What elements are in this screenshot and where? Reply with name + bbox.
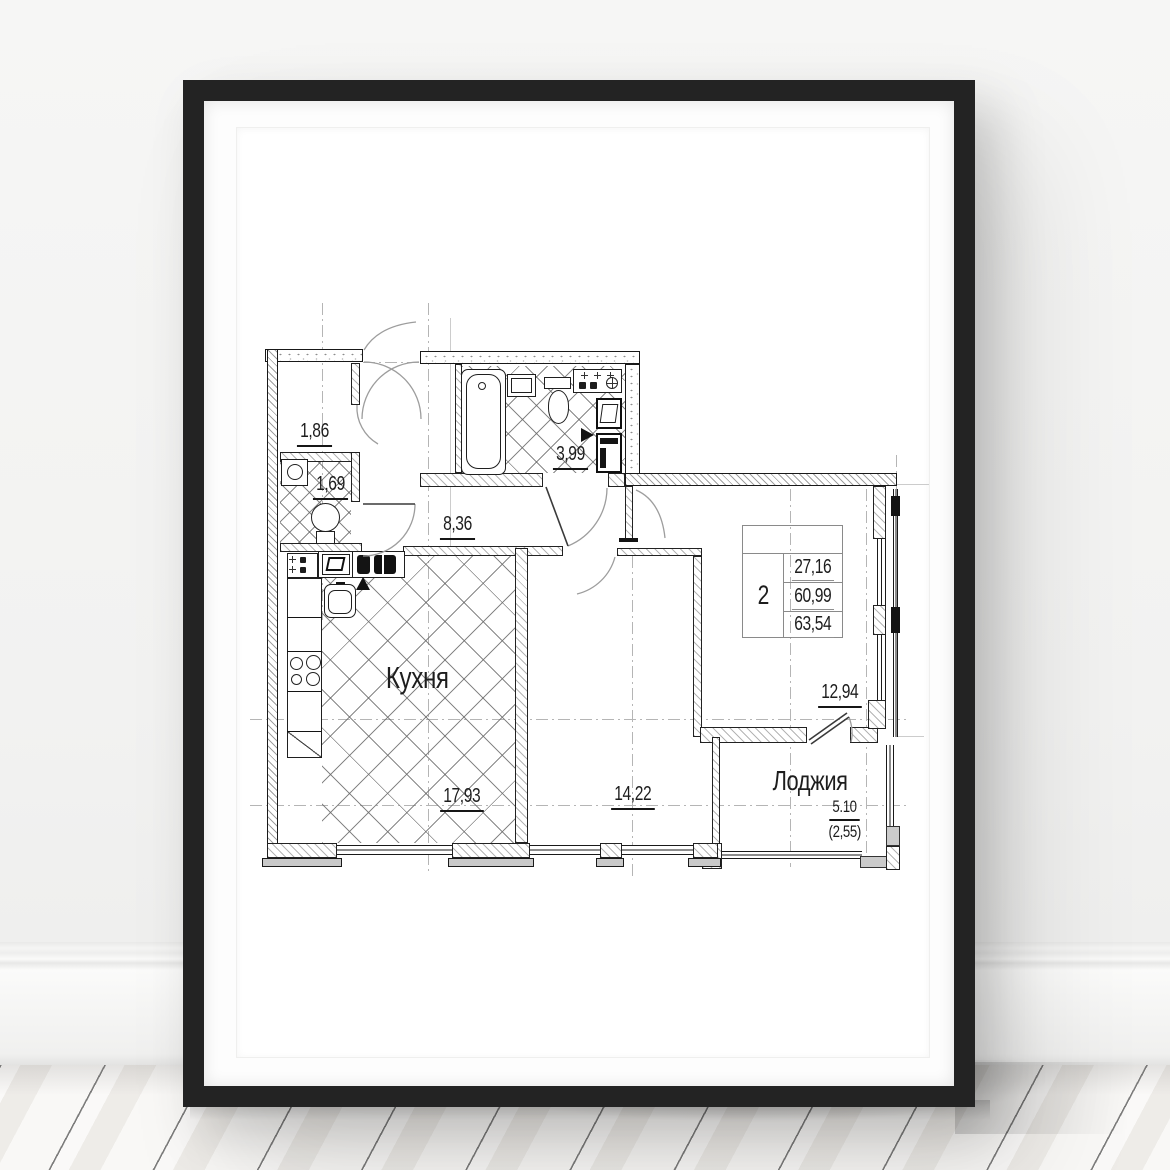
nook-door-arc	[357, 405, 378, 444]
living-door-arc	[577, 557, 615, 594]
label-wc-area: 1,69	[304, 476, 356, 496]
label-kitchen-name: Кухня	[362, 660, 472, 696]
label-bedroom-area: 12,94	[809, 684, 871, 704]
door-swing-arcs	[0, 0, 1170, 1170]
loggia-door-leaf	[809, 713, 847, 740]
table-living-area: 27,16	[784, 555, 842, 581]
floor-plan: 1,86 1,69 3,99 8,36 Кухня 17,93 14,22 12…	[0, 0, 1170, 1170]
loggia-door-leaf	[811, 717, 849, 744]
entry-door-arc	[362, 362, 419, 419]
label-kitchen-area: 17,93	[431, 788, 493, 808]
bedroom-door-arc	[636, 490, 665, 538]
label-bathroom-area: 3,99	[540, 446, 600, 467]
label-hallway-area: 8,36	[429, 516, 486, 536]
wc-door-arc	[363, 504, 415, 556]
table-line	[742, 553, 843, 554]
bathroom-door-leaf	[546, 487, 568, 546]
entry-door-outer-arc	[364, 322, 416, 350]
table-rooms-count: 2	[748, 575, 778, 615]
label-entry-area: 1,86	[288, 423, 340, 443]
loggia-door-arc	[849, 717, 852, 742]
entry-door-arc	[364, 362, 421, 419]
table-apartment-area: 60,99	[784, 584, 842, 610]
label-living-room-area: 14,22	[602, 786, 664, 806]
scene: 1,86 1,69 3,99 8,36 Кухня 17,93 14,22 12…	[0, 0, 1170, 1170]
label-loggia-area-full: 5.10	[818, 800, 872, 818]
bathroom-door-arc	[568, 488, 607, 546]
table-line	[783, 582, 843, 583]
label-loggia-name: Лоджия	[753, 764, 868, 798]
table-total-area: 63,54	[784, 612, 842, 638]
label-loggia-area-reduced: (2,55)	[812, 822, 878, 842]
